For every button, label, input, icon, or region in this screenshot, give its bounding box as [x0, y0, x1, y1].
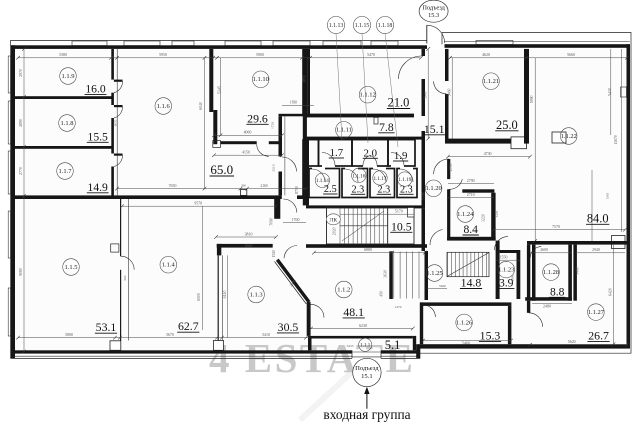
svg-text:5345: 5345 — [217, 86, 221, 94]
svg-text:7090: 7090 — [270, 218, 274, 226]
svg-text:2160: 2160 — [260, 184, 267, 188]
svg-text:8.4: 8.4 — [463, 223, 478, 236]
svg-text:5660: 5660 — [567, 53, 575, 57]
svg-text:15.3: 15.3 — [480, 328, 501, 342]
svg-text:1.7: 1.7 — [330, 147, 344, 159]
svg-text:5380: 5380 — [59, 53, 67, 57]
svg-text:62.7: 62.7 — [178, 319, 199, 333]
svg-text:1.1.18: 1.1.18 — [378, 23, 393, 29]
svg-text:1.9: 1.9 — [394, 150, 408, 162]
svg-text:6040: 6040 — [199, 102, 203, 110]
svg-text:2790: 2790 — [467, 179, 475, 183]
svg-text:1.1.3: 1.1.3 — [250, 291, 263, 298]
svg-text:1.1.4: 1.1.4 — [162, 262, 176, 269]
svg-text:15.1: 15.1 — [424, 122, 445, 136]
svg-text:4060: 4060 — [244, 131, 252, 135]
svg-text:1.1.2: 1.1.2 — [337, 286, 350, 293]
svg-text:3850: 3850 — [303, 75, 307, 83]
svg-text:450: 450 — [380, 291, 384, 297]
svg-text:3810: 3810 — [245, 233, 253, 237]
svg-text:4730: 4730 — [484, 152, 492, 156]
svg-text:9570: 9570 — [194, 202, 202, 206]
svg-text:9080: 9080 — [19, 268, 23, 276]
svg-text:2780: 2780 — [449, 163, 453, 171]
svg-text:25.0: 25.0 — [496, 118, 518, 132]
svg-text:11670: 11670 — [614, 135, 618, 145]
svg-text:3.9: 3.9 — [499, 277, 514, 290]
svg-text:1830: 1830 — [290, 100, 297, 104]
svg-text:290: 290 — [241, 184, 246, 188]
svg-text:3630: 3630 — [383, 270, 387, 278]
svg-text:2890: 2890 — [19, 119, 23, 127]
svg-text:5670: 5670 — [166, 333, 174, 337]
svg-text:1.1.5: 1.1.5 — [65, 264, 78, 271]
svg-text:5170: 5170 — [395, 210, 403, 214]
svg-text:5.1: 5.1 — [385, 338, 401, 352]
svg-text:5470: 5470 — [367, 53, 375, 57]
svg-text:1.1.8: 1.1.8 — [61, 120, 74, 127]
svg-text:5365: 5365 — [606, 192, 610, 199]
svg-text:10.5: 10.5 — [391, 219, 412, 233]
svg-text:7650: 7650 — [169, 184, 177, 188]
svg-text:5800: 5800 — [65, 333, 73, 337]
svg-text:2.3: 2.3 — [378, 184, 391, 195]
svg-text:8670: 8670 — [114, 119, 118, 126]
svg-text:1.1.26: 1.1.26 — [456, 319, 473, 326]
svg-text:1470: 1470 — [395, 305, 402, 309]
svg-text:5620: 5620 — [568, 340, 576, 344]
svg-text:14.9: 14.9 — [88, 181, 108, 194]
svg-text:2020: 2020 — [333, 227, 337, 235]
svg-text:15.5: 15.5 — [88, 130, 108, 143]
svg-text:16.0: 16.0 — [85, 83, 105, 96]
svg-text:6880: 6880 — [364, 248, 372, 252]
svg-text:3640: 3640 — [245, 244, 253, 248]
svg-text:1720: 1720 — [270, 122, 274, 129]
svg-text:5990: 5990 — [530, 95, 534, 103]
svg-text:1.1.10: 1.1.10 — [253, 76, 269, 83]
svg-text:2480: 2480 — [543, 305, 551, 309]
svg-text:5460: 5460 — [462, 341, 470, 345]
svg-text:1.1.20: 1.1.20 — [425, 185, 441, 192]
svg-text:53.1: 53.1 — [96, 320, 117, 334]
svg-text:2710: 2710 — [467, 193, 475, 197]
svg-text:1.1.12: 1.1.12 — [359, 92, 375, 99]
svg-text:1.1.13: 1.1.13 — [329, 23, 344, 29]
svg-text:30.5: 30.5 — [278, 320, 299, 334]
svg-text:29.6: 29.6 — [247, 111, 268, 125]
svg-text:1.1.25: 1.1.25 — [426, 270, 442, 277]
svg-text:6230: 6230 — [359, 324, 367, 328]
svg-text:5190: 5190 — [422, 192, 426, 200]
svg-text:2.0: 2.0 — [364, 147, 378, 159]
svg-text:4150: 4150 — [242, 151, 250, 155]
svg-text:Подъезд: Подъезд — [355, 365, 379, 372]
svg-text:5620: 5620 — [439, 284, 446, 288]
svg-text:1550: 1550 — [500, 256, 508, 260]
svg-text:Подъезд: Подъезд — [422, 5, 445, 12]
svg-text:3490: 3490 — [576, 267, 580, 275]
svg-text:5640: 5640 — [424, 91, 428, 99]
svg-text:1700: 1700 — [292, 218, 300, 222]
svg-text:2.3: 2.3 — [400, 184, 413, 195]
svg-text:1.1.11: 1.1.11 — [336, 127, 352, 134]
svg-text:900: 900 — [123, 275, 127, 280]
svg-text:1.1.24: 1.1.24 — [457, 211, 474, 218]
svg-text:5950: 5950 — [159, 53, 167, 57]
svg-text:1.1.19: 1.1.19 — [398, 177, 411, 183]
svg-text:5460: 5460 — [447, 88, 451, 96]
svg-text:6420: 6420 — [608, 288, 612, 296]
svg-text:6500: 6500 — [197, 293, 201, 301]
svg-text:1.1.21: 1.1.21 — [483, 78, 499, 85]
svg-text:8750: 8750 — [295, 186, 299, 194]
svg-text:2970: 2970 — [19, 69, 23, 77]
svg-text:входная группа: входная группа — [323, 407, 410, 422]
svg-text:15.3: 15.3 — [428, 12, 439, 19]
svg-text:2770: 2770 — [19, 167, 23, 175]
svg-text:1.1.16: 1.1.16 — [352, 173, 365, 179]
svg-text:7570: 7570 — [552, 225, 560, 229]
svg-text:1.1.9: 1.1.9 — [62, 73, 75, 80]
svg-text:5435: 5435 — [347, 344, 354, 348]
svg-text:3170: 3170 — [495, 210, 499, 217]
svg-text:26.7: 26.7 — [588, 328, 609, 342]
svg-text:14.8: 14.8 — [461, 276, 482, 290]
svg-text:21.0: 21.0 — [388, 96, 410, 110]
svg-text:3210: 3210 — [272, 164, 276, 171]
svg-text:5410: 5410 — [262, 333, 270, 337]
svg-text:6140: 6140 — [223, 291, 227, 299]
svg-text:1.1.7: 1.1.7 — [59, 168, 73, 175]
svg-text:1.1.28: 1.1.28 — [543, 269, 559, 276]
svg-text:1.1.23: 1.1.23 — [498, 267, 514, 274]
svg-text:8.8: 8.8 — [550, 285, 565, 298]
svg-text:2600: 2600 — [540, 248, 548, 252]
svg-text:65.0: 65.0 — [210, 162, 233, 177]
svg-text:84.0: 84.0 — [587, 211, 609, 225]
svg-text:15.1: 15.1 — [361, 373, 373, 380]
svg-text:1.1.17: 1.1.17 — [374, 176, 387, 182]
svg-text:48.1: 48.1 — [343, 305, 364, 319]
svg-text:ЛК: ЛК — [330, 217, 338, 223]
svg-text:4620: 4620 — [482, 53, 490, 57]
svg-text:3220: 3220 — [481, 214, 485, 222]
svg-text:1.1.6: 1.1.6 — [157, 103, 171, 110]
svg-text:2940: 2940 — [592, 248, 600, 252]
svg-text:5410: 5410 — [608, 88, 612, 96]
svg-text:1.1.27: 1.1.27 — [588, 309, 605, 316]
svg-text:1.1.1: 1.1.1 — [360, 344, 371, 349]
svg-text:2.5: 2.5 — [324, 184, 337, 195]
svg-text:7.8: 7.8 — [379, 121, 394, 134]
svg-text:5900: 5900 — [256, 53, 264, 57]
svg-text:1.1.22: 1.1.22 — [561, 133, 577, 140]
svg-text:1520: 1520 — [272, 250, 276, 258]
svg-text:1.1.15: 1.1.15 — [355, 23, 370, 29]
svg-text:2.3: 2.3 — [352, 184, 365, 195]
